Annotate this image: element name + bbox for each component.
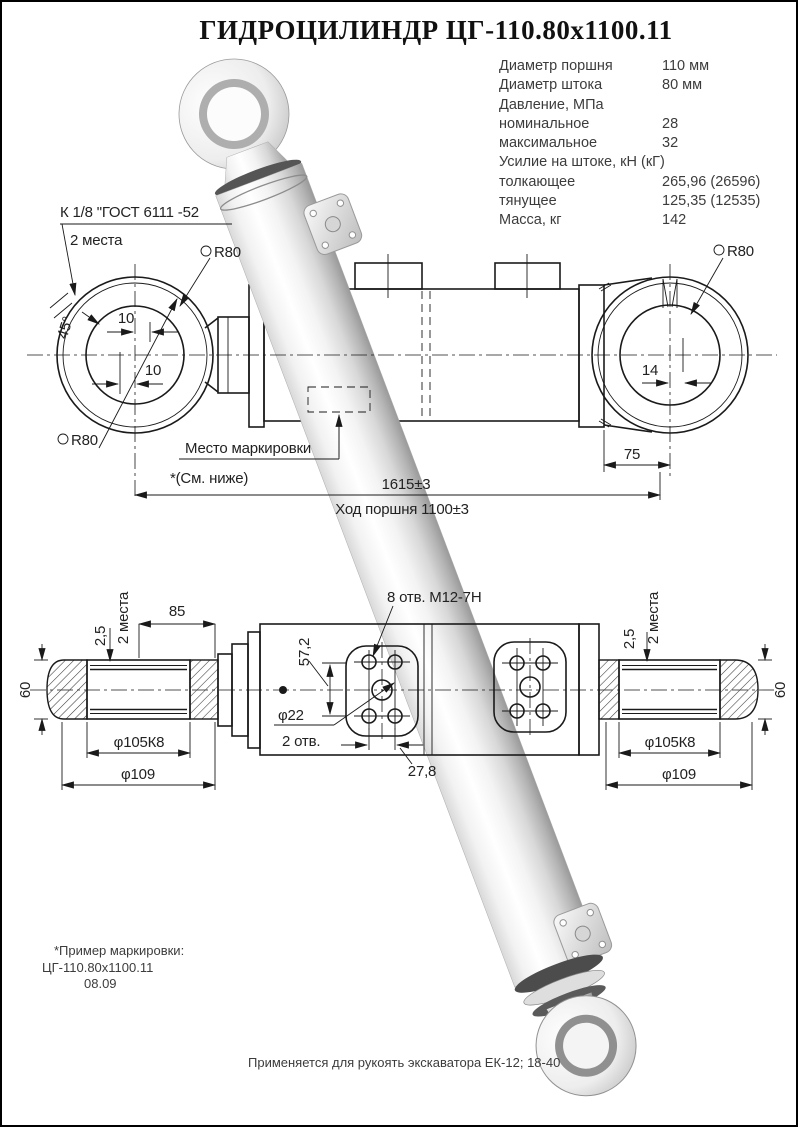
two-places-left: 2 места xyxy=(115,591,132,644)
port-boss-2 xyxy=(495,263,560,289)
spec-row: номинальное28 xyxy=(499,116,789,135)
dim-offset-top: 10 xyxy=(118,310,134,327)
dia-105-right: φ105К8 xyxy=(645,734,696,751)
dim-60-right: 60 xyxy=(772,682,789,698)
dim-right-offset: 14 xyxy=(642,362,658,379)
dim-piston-stroke: Ход поршня 1100±3 xyxy=(335,501,469,518)
two-places-right: 2 места xyxy=(645,591,662,644)
spec-label: толкающее xyxy=(499,174,575,190)
upper-view xyxy=(50,254,748,433)
holes-2: 2 отв. xyxy=(282,733,320,750)
barrel-3d xyxy=(216,163,601,987)
spec-label: Масса, кг xyxy=(499,212,562,228)
spec-row: максимальное32 xyxy=(499,135,789,154)
spec-row: толкающее265,96 (26596) xyxy=(499,174,789,193)
right-pin-end xyxy=(720,660,758,719)
marking-place-label: Место маркировки xyxy=(185,440,311,457)
spec-value: 28 xyxy=(662,116,678,132)
marking-example: *Пример маркировки: ЦГ-110.80х1100.11 08… xyxy=(42,943,184,993)
dim-60-left: 60 xyxy=(17,682,34,698)
dia-109-right: φ109 xyxy=(662,766,696,783)
spec-row: Усилие на штоке, кН (кГ) xyxy=(499,154,789,173)
see-below-note: *(См. ниже) xyxy=(170,470,248,487)
spec-label: Диаметр поршня xyxy=(499,58,613,74)
spec-row: Диаметр поршня110 мм xyxy=(499,58,789,77)
spec-label: Усилие на штоке, кН (кГ) xyxy=(499,154,665,170)
spec-value: 32 xyxy=(662,135,678,151)
spec-row: Давление, МПа xyxy=(499,97,789,116)
sphere-symbol-icon xyxy=(58,434,68,444)
spec-row: тянущее125,35 (12535) xyxy=(499,193,789,212)
spec-value: 80 мм xyxy=(662,77,702,93)
page-title: ГИДРОЦИЛИНДР ЦГ-110.80х1100.11 xyxy=(72,15,798,46)
spec-value: 125,35 (12535) xyxy=(662,193,760,209)
port-note-line2: 2 места xyxy=(70,232,123,249)
holes-note: 8 отв. М12-7Н xyxy=(387,589,481,606)
left-pin-end xyxy=(47,660,87,719)
dim-27-8: 27,8 xyxy=(408,763,436,780)
dia-109-left: φ109 xyxy=(121,766,155,783)
sphere-symbol-icon xyxy=(201,246,211,256)
sphere-radius-right: R80 xyxy=(727,243,754,260)
spec-value: 142 xyxy=(662,212,686,228)
marking-example-label: *Пример маркировки: xyxy=(42,943,184,960)
dim-2-5-left: 2,5 xyxy=(92,626,109,646)
dim-pin-width: 75 xyxy=(624,446,640,463)
dia-105-left: φ105К8 xyxy=(114,734,165,751)
sphere-radius-left-bottom: R80 xyxy=(71,432,98,449)
dia-22: φ22 xyxy=(278,707,304,724)
dim-offset-bottom: 10 xyxy=(145,362,161,379)
spec-row: Масса, кг142 xyxy=(499,212,789,231)
marking-example-date: 08.09 xyxy=(42,976,184,993)
spec-value: 110 мм xyxy=(662,58,709,74)
spec-label: тянущее xyxy=(499,193,557,209)
dim-2-5-right: 2,5 xyxy=(621,629,638,649)
port-note-line1: К 1/8 "ГОСТ 6111 -52 xyxy=(60,204,199,221)
spec-row: Диаметр штока80 мм xyxy=(499,77,789,96)
dim-57-2: 57,2 xyxy=(296,638,313,666)
dim-angle: 45° xyxy=(54,315,77,341)
sphere-symbol-icon xyxy=(714,245,724,255)
spec-label: номинальное xyxy=(499,116,589,132)
port-boss-1 xyxy=(355,263,422,289)
spec-value: 265,96 (26596) xyxy=(662,174,760,190)
marking-example-value: ЦГ-110.80х1100.11 xyxy=(42,960,184,977)
sphere-radius-left-top: R80 xyxy=(214,244,241,261)
dim-overall-length: 1615±3 xyxy=(382,476,431,493)
spec-label: Давление, МПа xyxy=(499,97,604,113)
spec-label: Диаметр штока xyxy=(499,77,602,93)
spec-table: Диаметр поршня110 мм Диаметр штока80 мм … xyxy=(499,58,789,232)
application-note: Применяется для рукоять экскаватора ЕК-1… xyxy=(248,1055,560,1070)
spec-label: максимальное xyxy=(499,135,597,151)
drawing-sheet: К 1/8 "ГОСТ 6111 -52 2 места R80 R80 R80… xyxy=(0,0,798,1127)
dim-85: 85 xyxy=(169,603,185,620)
